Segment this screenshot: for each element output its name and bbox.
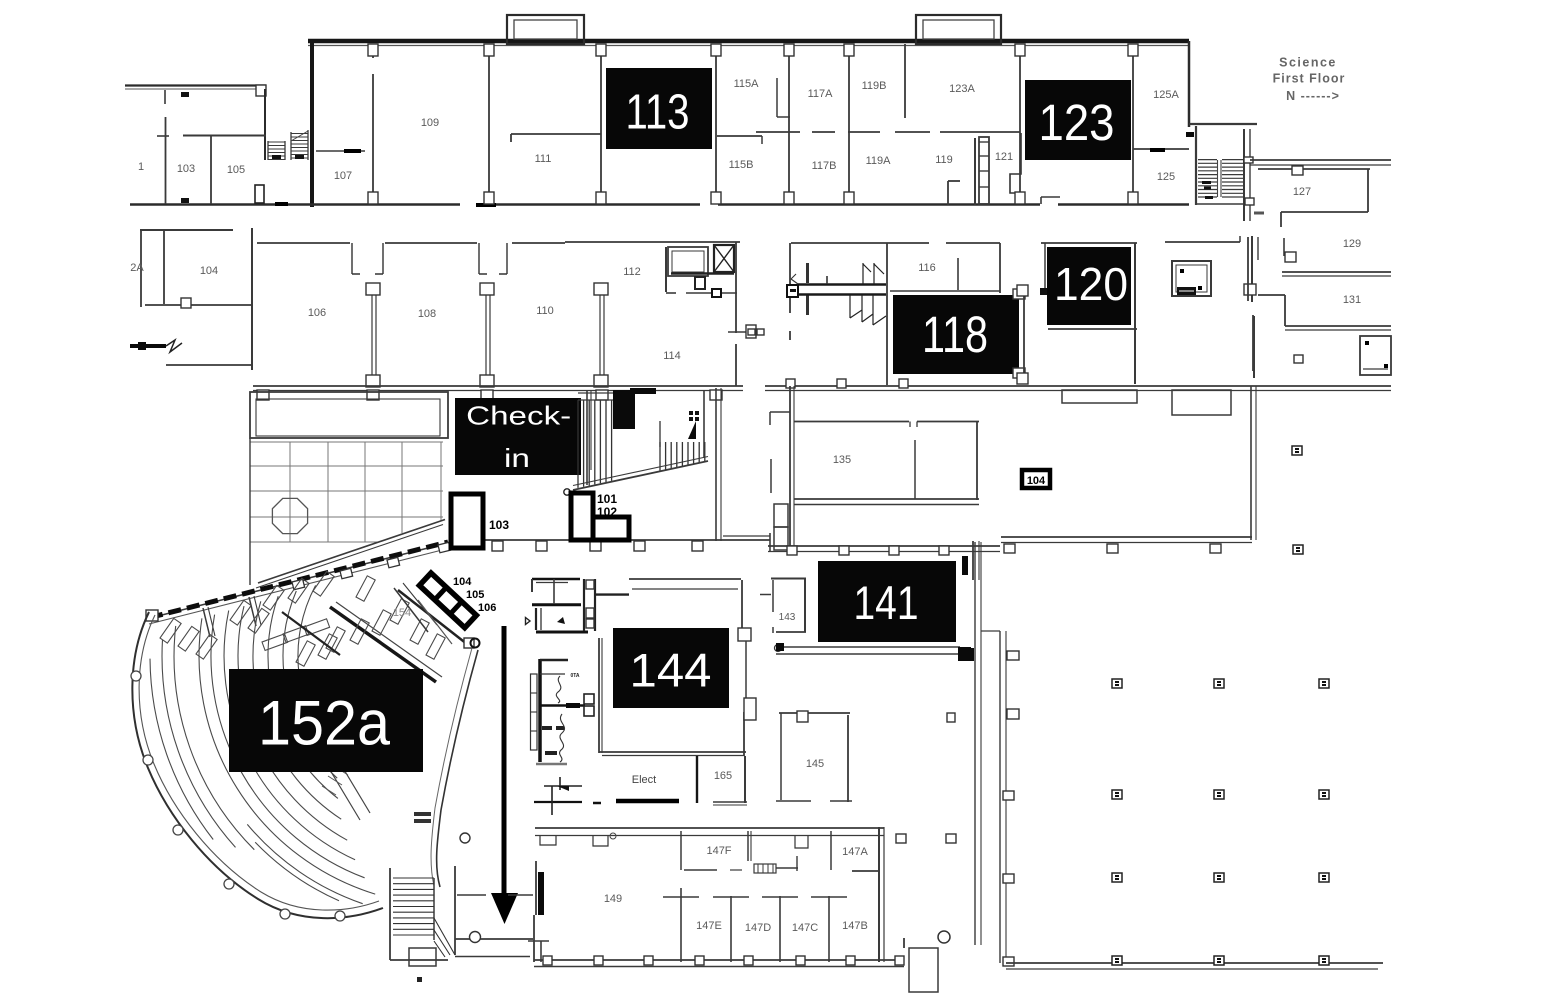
svg-text:1: 1	[138, 161, 144, 173]
svg-text:102: 102	[597, 505, 617, 519]
svg-text:105: 105	[466, 589, 484, 601]
svg-text:0TA: 0TA	[570, 673, 579, 679]
svg-text:141: 141	[854, 576, 919, 629]
svg-text:152a: 152a	[258, 688, 391, 758]
svg-text:115A: 115A	[734, 78, 760, 90]
svg-text:147E: 147E	[696, 920, 722, 932]
svg-text:149: 149	[604, 893, 622, 905]
svg-text:112: 112	[623, 266, 641, 278]
svg-text:Check-: Check-	[466, 400, 571, 430]
svg-text:108: 108	[418, 308, 436, 320]
svg-text:101: 101	[597, 492, 617, 506]
svg-text:119A: 119A	[866, 155, 892, 167]
svg-text:135: 135	[833, 454, 851, 466]
svg-text:121: 121	[995, 151, 1013, 163]
svg-text:165: 165	[714, 770, 732, 782]
svg-text:125: 125	[1157, 171, 1175, 183]
svg-text:118: 118	[922, 306, 988, 363]
svg-text:103: 103	[489, 518, 509, 532]
svg-text:119: 119	[935, 154, 953, 166]
svg-text:145: 145	[806, 758, 824, 770]
svg-text:in: in	[504, 443, 530, 473]
svg-text:147B: 147B	[842, 920, 868, 932]
svg-text:131: 131	[1343, 294, 1361, 306]
svg-text:110: 110	[536, 305, 554, 317]
svg-text:113: 113	[626, 85, 690, 139]
svg-text:147F: 147F	[706, 845, 731, 857]
svg-text:111: 111	[535, 153, 552, 165]
svg-text:107: 107	[334, 170, 352, 182]
svg-text:144: 144	[630, 644, 712, 697]
svg-text:115B: 115B	[729, 159, 754, 171]
svg-text:First Floor: First Floor	[1273, 72, 1346, 86]
svg-text:147D: 147D	[745, 922, 771, 934]
svg-text:123: 123	[1039, 94, 1115, 151]
svg-text:103: 103	[177, 163, 195, 175]
svg-text:125A: 125A	[1153, 89, 1179, 101]
svg-text:147A: 147A	[842, 846, 868, 858]
svg-text:106: 106	[308, 307, 326, 319]
svg-text:116: 116	[918, 262, 936, 274]
svg-text:119B: 119B	[862, 80, 887, 92]
svg-text:117A: 117A	[808, 88, 834, 100]
svg-text:143: 143	[779, 612, 796, 623]
svg-text:154: 154	[393, 607, 411, 619]
svg-text:N ------>: N ------>	[1286, 89, 1340, 103]
svg-text:104: 104	[1027, 475, 1046, 487]
svg-text:104: 104	[453, 576, 472, 588]
svg-text:106: 106	[478, 602, 496, 614]
svg-text:114: 114	[663, 350, 681, 362]
svg-text:104: 104	[200, 265, 218, 277]
svg-text:Science: Science	[1279, 56, 1337, 70]
svg-text:109: 109	[421, 117, 439, 129]
svg-text:147C: 147C	[792, 922, 818, 934]
svg-text:105: 105	[227, 164, 245, 176]
svg-text:127: 127	[1293, 186, 1311, 198]
svg-text:117B: 117B	[812, 160, 837, 172]
svg-text:129: 129	[1343, 238, 1361, 250]
svg-text:120: 120	[1054, 258, 1128, 310]
svg-text:Elect: Elect	[632, 774, 656, 786]
svg-text:2A: 2A	[130, 262, 144, 274]
svg-text:123A: 123A	[949, 83, 975, 95]
